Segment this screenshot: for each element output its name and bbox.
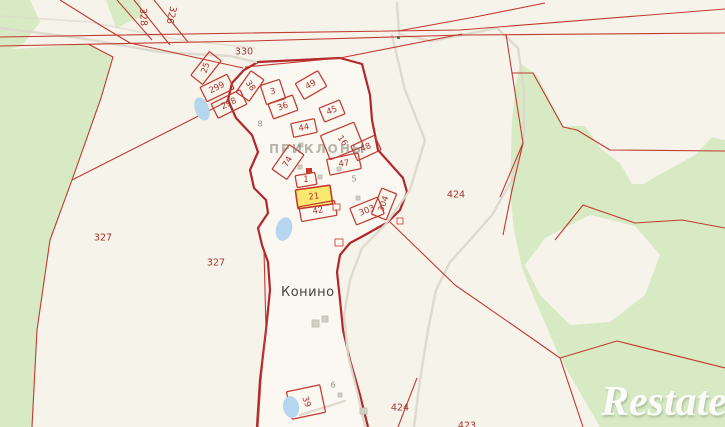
building [318,175,322,179]
parcel-label-42: 42 [312,205,324,217]
area-label-327: 327 [207,258,225,269]
building [356,196,360,200]
building [337,167,341,171]
building-marker-red [306,168,312,173]
area-label-424: 424 [447,190,465,201]
area-label-327: 327 [94,233,112,244]
cadastral-map-viewport[interactable]: 2529929838336494544164847741214230330439… [0,0,725,427]
building [338,393,342,397]
area-label-330: 330 [235,47,253,58]
house-number-label: 5 [351,175,356,184]
building [360,408,367,414]
area-label-328: 328 [137,8,149,27]
building [397,36,400,39]
parcel-label-21: 21 [308,191,320,202]
cadastral-map-svg: 2529929838336494544164847741214230330439… [0,0,725,427]
parcel-label-1: 1 [303,175,308,185]
building [312,320,319,327]
house-number-label: 6 [330,381,335,390]
area-label-423: 423 [458,421,476,427]
building [322,316,328,322]
area-label-424: 424 [391,403,409,414]
house-number-label: 8 [257,120,262,129]
building [397,218,403,224]
building [298,165,302,169]
building [335,239,343,246]
building [299,143,303,147]
building [333,204,340,210]
